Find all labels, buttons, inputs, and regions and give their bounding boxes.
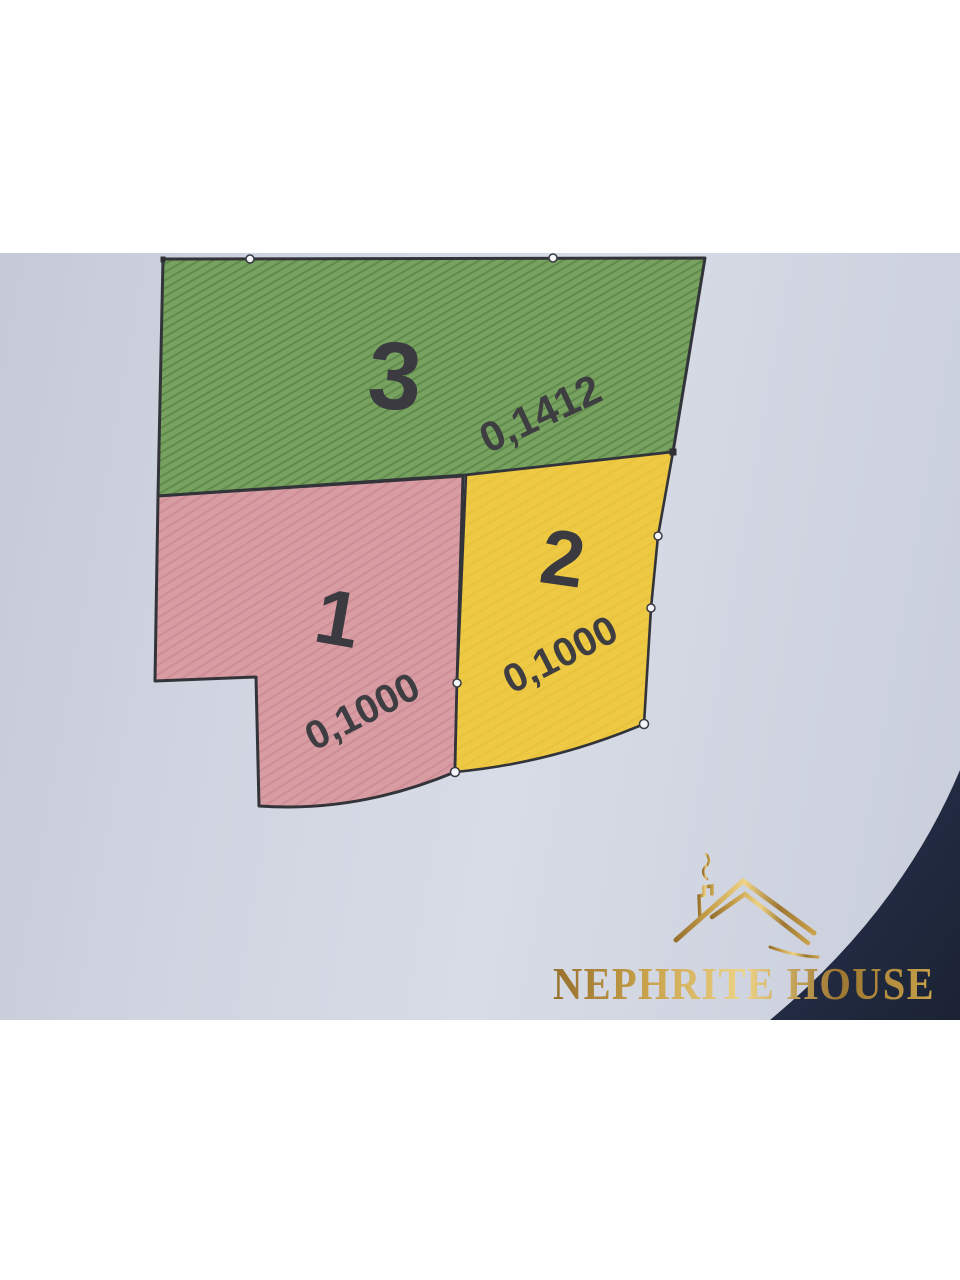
vertex-dot-icon: [453, 679, 461, 687]
vertex-dot-icon: [549, 254, 557, 262]
vertex-dot-icon: [654, 532, 662, 540]
vertex-dot-icon: [640, 720, 649, 729]
parcel-3-number: 3: [365, 321, 426, 431]
vertex-dot-icon: [647, 604, 655, 612]
vertex-dot-icon: [451, 768, 460, 777]
vertex-square-icon: [670, 449, 677, 456]
parcel-plan-photo: 3 0,1412 1 0,1000 2 0,1000 NEPHRITE HOUS…: [0, 253, 960, 1020]
parcel-map-svg: 3 0,1412 1 0,1000 2 0,1000 NEPHRITE HOUS…: [0, 253, 960, 1020]
vertex-dot-icon: [246, 255, 254, 263]
vertex-square-icon: [161, 257, 166, 263]
screenshot-root: 3 0,1412 1 0,1000 2 0,1000 NEPHRITE HOUS…: [0, 0, 960, 1280]
parcel-1-region: [155, 476, 463, 807]
brand-wordmark: NEPHRITE HOUSE: [553, 958, 935, 1009]
roof-chimney-smoke-icon: [676, 854, 818, 957]
